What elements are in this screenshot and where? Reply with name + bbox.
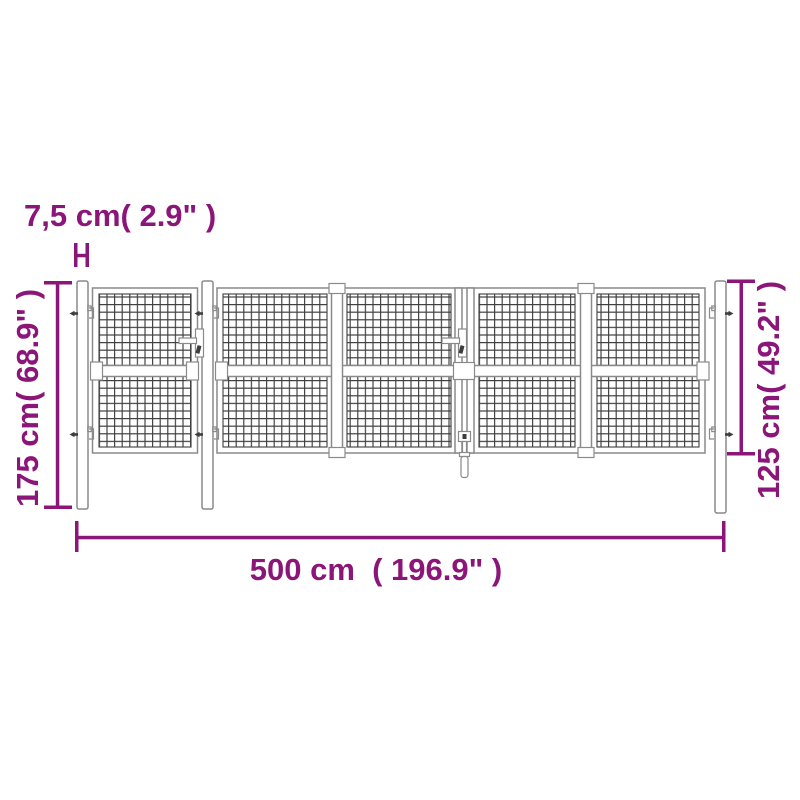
divider-right-bottom-bracket: [578, 448, 594, 458]
divider-bar-right: [581, 288, 592, 453]
post-width-marker: [74, 243, 89, 267]
hinge-pin-icon: [729, 432, 734, 437]
hinge-pin-stub: [199, 433, 203, 436]
divider-left-top-bracket: [329, 284, 345, 294]
hinge-pin-stub: [725, 312, 729, 315]
center-rail-bracket: [454, 363, 475, 380]
left-post: [77, 281, 88, 509]
single-rail-left-bracket: [91, 362, 103, 380]
gate-height-label: 125 cm( 49.2" ): [752, 281, 786, 499]
drop-rod: [459, 432, 471, 478]
divider-right-top-bracket: [578, 284, 594, 294]
hinge-pin-stub: [74, 312, 78, 315]
gate-drawing: [0, 0, 800, 800]
drop-rod-tip: [461, 457, 468, 478]
hinge-pin-stub: [74, 433, 78, 436]
double-rail-left-bracket: [216, 362, 228, 380]
divider-bar-left: [332, 288, 343, 453]
post-height-dimension-line: [44, 281, 72, 509]
post-width-label: 7,5 cm( 2.9" ): [24, 199, 216, 233]
double-rail-right-bracket: [697, 362, 709, 380]
hinge-pin-stub: [725, 433, 729, 436]
center-handle: [442, 338, 460, 344]
gate-dimension-diagram: 7,5 cm( 2.9" ) 175 cm( 68.9" ) 125 cm( 4…: [0, 0, 800, 800]
single-gate-handle: [179, 338, 197, 344]
single-gate-mid-rail: [93, 366, 198, 377]
post-height-label: 175 cm( 68.9" ): [11, 289, 45, 507]
drop-rod-shaft: [463, 442, 467, 454]
hinge-pin-icon: [70, 432, 75, 437]
total-width-label: 500 cm ( 196.9" ): [250, 553, 503, 587]
total-width-dimension-line: [75, 521, 726, 552]
middle-post: [202, 281, 213, 509]
hinge-pin-stub: [199, 312, 203, 315]
divider-left-bottom-bracket: [329, 448, 345, 458]
hinge-pin-icon: [70, 311, 75, 316]
single-rail-right-bracket: [187, 362, 199, 380]
right-post: [715, 281, 726, 513]
drop-rod-pin: [463, 434, 467, 439]
hinge-pin-icon: [729, 311, 734, 316]
